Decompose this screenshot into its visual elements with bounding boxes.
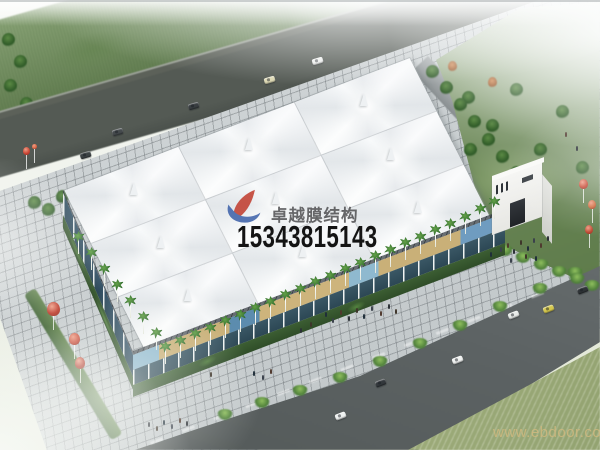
entrance-door — [510, 198, 525, 227]
palm-tree — [234, 310, 247, 332]
palm-tree — [150, 328, 163, 350]
field-tree — [464, 143, 477, 157]
roof-cone-tip — [184, 288, 192, 301]
shrub — [532, 283, 548, 294]
palm-tree — [72, 232, 85, 254]
balloon-decoration — [69, 333, 80, 346]
plaza-tree — [42, 203, 55, 217]
person-figure — [500, 247, 502, 252]
person-figure — [148, 422, 150, 427]
roof-cone-tip — [130, 182, 138, 195]
shrub — [292, 385, 308, 396]
person-figure — [565, 132, 567, 137]
shrub — [372, 356, 388, 367]
image-top-border — [0, 0, 600, 2]
palm-tree — [339, 264, 352, 286]
palm-tree — [189, 329, 202, 351]
shrub — [515, 252, 531, 263]
palm-tree — [124, 296, 137, 318]
palm-tree — [354, 258, 367, 280]
watermark-website-url: www.ebdoor.com — [493, 424, 600, 441]
person-figure — [348, 316, 350, 321]
palm-tree — [399, 238, 412, 260]
palm-tree — [111, 280, 124, 302]
roadside-tree — [4, 79, 17, 93]
person-figure — [210, 372, 212, 377]
person-figure — [262, 375, 264, 380]
roadside-tree — [2, 33, 15, 47]
roof-cone-tip — [360, 93, 368, 106]
small-tree — [426, 65, 439, 79]
watermark-phone-number: 15343815143 — [237, 219, 378, 255]
field-tree — [510, 83, 523, 97]
small-tree — [468, 115, 481, 129]
shrub — [569, 273, 585, 284]
balloon-decoration — [32, 144, 37, 150]
field-tree — [486, 119, 499, 133]
person-figure — [547, 236, 549, 241]
car-windshield — [314, 59, 318, 63]
person-figure — [340, 310, 342, 315]
ornamental-plant — [448, 61, 457, 72]
palm-tree — [204, 323, 217, 345]
shrub — [217, 409, 233, 420]
balloon-string — [592, 209, 593, 223]
shrub — [412, 338, 428, 349]
palm-tree — [98, 264, 111, 286]
car-windshield — [579, 288, 583, 292]
roof-cone-tip — [387, 147, 395, 160]
roof-cone-tip — [157, 235, 165, 248]
palm-tree — [488, 197, 501, 219]
balloon-string — [583, 189, 584, 203]
car — [79, 151, 91, 159]
roadside-tree — [14, 55, 27, 69]
palm-tree — [414, 232, 427, 254]
shrub — [492, 301, 508, 312]
palm-tree — [474, 204, 487, 226]
palm-tree — [219, 316, 232, 338]
person-figure — [510, 258, 512, 263]
shrub — [254, 397, 270, 408]
balloon-decoration — [75, 357, 85, 369]
palm-tree — [384, 245, 397, 267]
palm-tree — [264, 297, 277, 319]
shrub — [551, 266, 567, 277]
person-figure — [540, 243, 542, 248]
roof-cone-tip — [414, 200, 422, 213]
car-windshield — [337, 414, 341, 418]
person-figure — [395, 309, 397, 314]
person-figure — [380, 311, 382, 316]
person-figure — [171, 424, 173, 429]
person-figure — [533, 238, 535, 243]
entrance-building — [492, 168, 556, 240]
person-figure — [310, 322, 312, 327]
shrub — [452, 320, 468, 331]
person-figure — [363, 314, 365, 319]
person-figure — [356, 308, 358, 313]
person-figure — [525, 254, 527, 259]
entrance-window — [522, 174, 533, 183]
ornamental-plant — [488, 77, 497, 88]
field-tree — [576, 161, 589, 175]
person-figure — [156, 426, 158, 431]
person-figure — [576, 146, 578, 151]
person-figure — [270, 369, 272, 374]
person-figure — [527, 246, 529, 251]
small-tree — [454, 98, 467, 112]
balloon-string — [80, 369, 81, 383]
person-figure — [371, 306, 373, 311]
field-tree — [556, 105, 569, 119]
person-figure — [490, 252, 492, 257]
car-windshield — [114, 130, 118, 134]
car-windshield — [454, 358, 458, 362]
balloon-decoration — [47, 302, 60, 317]
balloon-string — [53, 316, 54, 330]
roof-cone-tip — [245, 137, 253, 150]
car-windshield — [266, 78, 270, 82]
car-windshield — [545, 307, 549, 311]
balloon-string — [34, 149, 35, 163]
car-windshield — [510, 313, 514, 317]
balloon-decoration — [585, 225, 593, 234]
balloon-decoration — [579, 179, 588, 189]
person-figure — [332, 318, 334, 323]
car-windshield — [82, 153, 86, 157]
person-figure — [253, 371, 255, 376]
field-tree — [534, 143, 547, 157]
palm-tree — [459, 212, 472, 234]
person-figure — [507, 243, 509, 248]
person-figure — [163, 420, 165, 425]
membrane-structure-aerial-rendering: 卓越膜结构 15343815143 www.ebdoor.com — [0, 0, 600, 450]
balloon-decoration — [588, 200, 596, 209]
person-figure — [388, 304, 390, 309]
balloon-string — [26, 155, 27, 169]
palm-tree — [174, 336, 187, 358]
small-tree — [440, 81, 453, 95]
palm-tree — [444, 219, 457, 241]
person-figure — [520, 240, 522, 245]
balloon-string — [74, 345, 75, 359]
person-figure — [186, 421, 188, 426]
palm-tree — [137, 312, 150, 334]
person-figure — [325, 312, 327, 317]
palm-tree — [309, 277, 322, 299]
small-tree — [496, 150, 509, 164]
shrub — [332, 372, 348, 383]
small-tree — [482, 133, 495, 147]
palm-tree — [85, 248, 98, 270]
entrance-side-wall — [542, 174, 552, 244]
person-figure — [513, 249, 515, 254]
palm-tree — [279, 290, 292, 312]
entrance-windows — [496, 180, 510, 194]
balloon-decoration — [23, 147, 30, 155]
car-windshield — [377, 381, 381, 385]
person-figure — [535, 256, 537, 261]
person-figure — [179, 418, 181, 423]
palm-tree — [429, 225, 442, 247]
palm-tree — [294, 284, 307, 306]
balloon-string — [589, 234, 590, 248]
car-windshield — [190, 104, 194, 108]
person-figure — [300, 328, 302, 333]
palm-tree — [249, 303, 262, 325]
palm-tree — [324, 271, 337, 293]
plaza-tree — [28, 196, 41, 210]
